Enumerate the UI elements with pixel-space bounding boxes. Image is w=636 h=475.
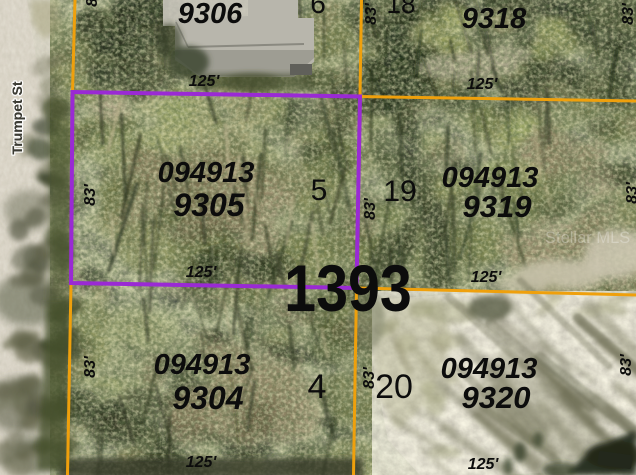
svg-text:125': 125' — [471, 269, 503, 286]
svg-text:19: 19 — [383, 175, 416, 208]
svg-text:Trumpet St: Trumpet St — [9, 81, 25, 154]
svg-text:1393: 1393 — [284, 252, 412, 326]
svg-text:20: 20 — [375, 368, 413, 406]
svg-text:9306: 9306 — [178, 0, 243, 30]
svg-text:83': 83' — [361, 366, 378, 389]
svg-text:125': 125' — [467, 76, 499, 93]
svg-text:18: 18 — [387, 0, 416, 19]
svg-text:9319: 9319 — [463, 189, 533, 224]
svg-text:9304: 9304 — [172, 380, 243, 416]
svg-text:83': 83' — [624, 181, 636, 204]
svg-text:125': 125' — [186, 264, 218, 281]
svg-text:Stellar MLS: Stellar MLS — [545, 229, 630, 247]
svg-text:83': 83' — [82, 355, 99, 378]
svg-text:6: 6 — [310, 0, 326, 19]
svg-text:83': 83' — [84, 0, 101, 7]
svg-text:125': 125' — [186, 454, 218, 471]
svg-text:4: 4 — [308, 368, 327, 406]
svg-text:094913: 094913 — [158, 157, 255, 189]
svg-text:83': 83' — [618, 353, 635, 376]
svg-text:83': 83' — [620, 2, 636, 25]
svg-text:83': 83' — [363, 2, 380, 25]
svg-text:9305: 9305 — [173, 187, 245, 223]
svg-text:094913: 094913 — [154, 349, 251, 381]
svg-text:83': 83' — [362, 197, 379, 220]
svg-text:125': 125' — [468, 456, 500, 473]
svg-text:5: 5 — [311, 174, 328, 207]
svg-text:9318: 9318 — [462, 3, 527, 35]
svg-text:83': 83' — [82, 183, 99, 206]
svg-text:9320: 9320 — [462, 380, 531, 415]
svg-text:125': 125' — [189, 73, 221, 90]
